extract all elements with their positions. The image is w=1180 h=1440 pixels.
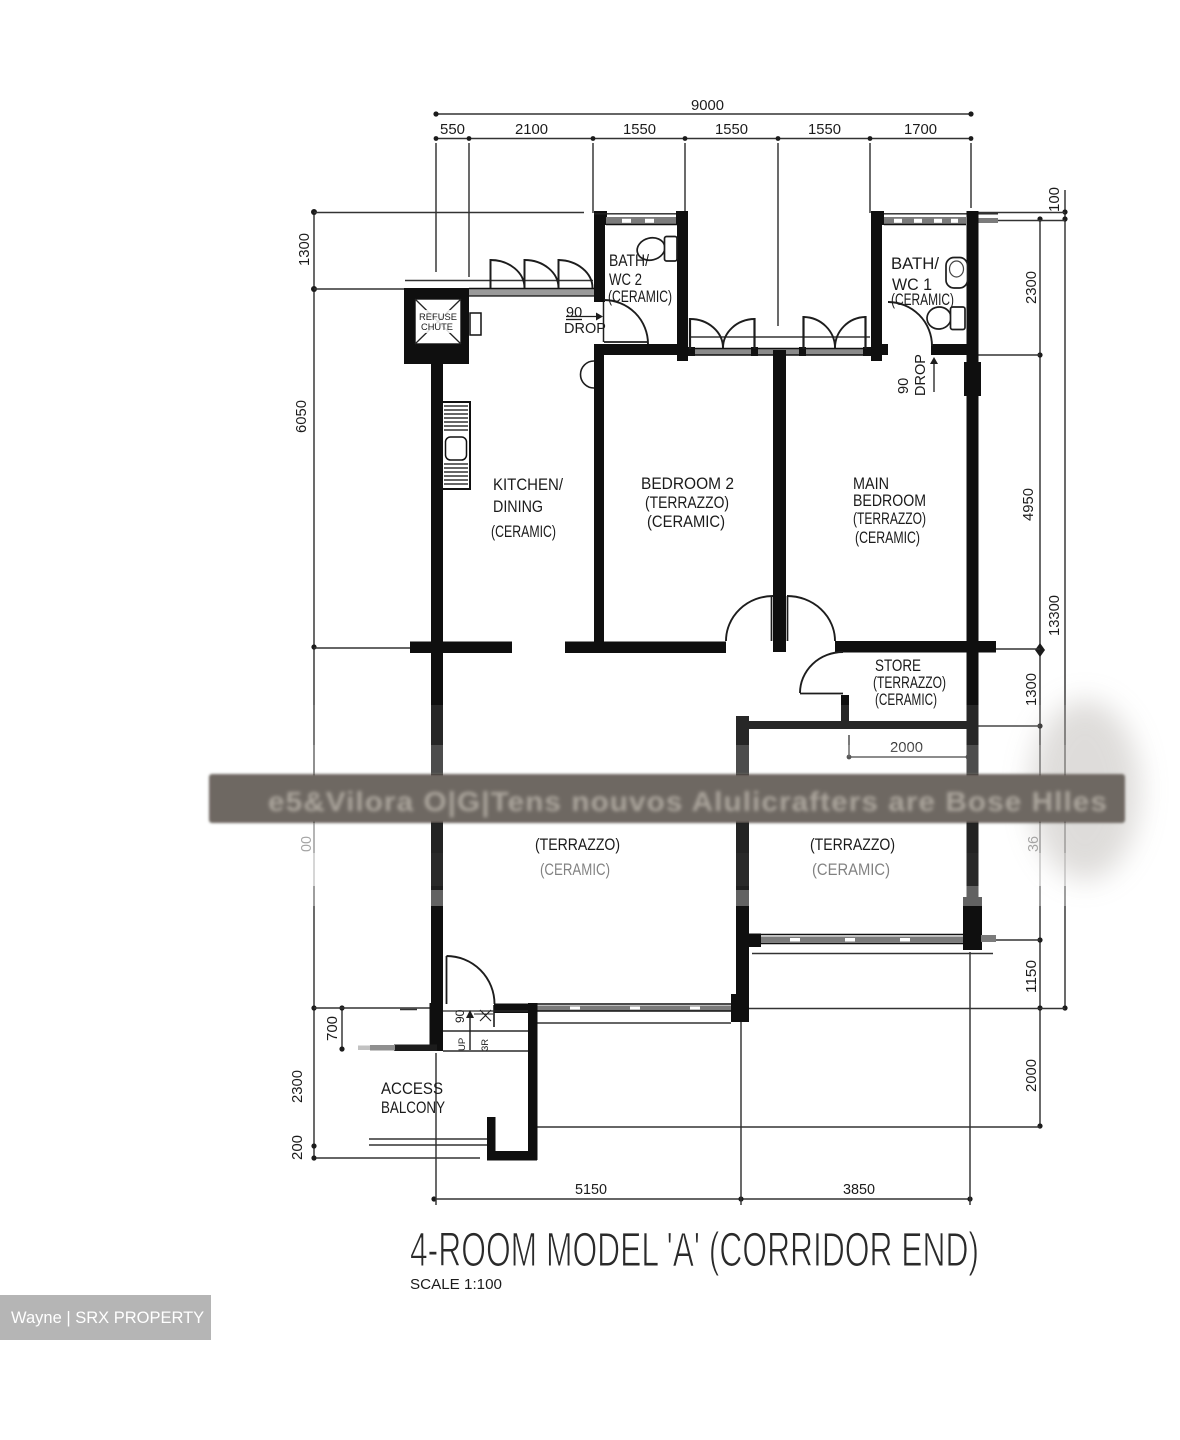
svg-text:1150: 1150 <box>1024 960 1040 993</box>
svg-text:(TERRAZZO): (TERRAZZO) <box>810 836 895 854</box>
svg-text:BATH/: BATH/ <box>891 255 939 273</box>
svg-text:2300: 2300 <box>290 1070 306 1103</box>
svg-text:BEDROOM: BEDROOM <box>853 492 926 510</box>
svg-text:DINING: DINING <box>493 498 543 516</box>
svg-text:Wayne | SRX PROPERTY: Wayne | SRX PROPERTY <box>11 1309 204 1327</box>
svg-text:1550: 1550 <box>808 122 841 138</box>
svg-text:(CERAMIC): (CERAMIC) <box>855 529 920 547</box>
svg-text:200: 200 <box>290 1135 306 1160</box>
svg-text:2000: 2000 <box>1024 1059 1040 1092</box>
svg-text:(CERAMIC): (CERAMIC) <box>491 523 556 541</box>
svg-text:(CERAMIC): (CERAMIC) <box>608 288 672 306</box>
svg-text:1550: 1550 <box>715 122 748 138</box>
svg-text:9000: 9000 <box>691 98 724 114</box>
svg-text:WC 2: WC 2 <box>609 271 642 289</box>
svg-text:DROP: DROP <box>564 321 606 337</box>
svg-text:4-ROOM MODEL 'A' (CORRIDOR END: 4-ROOM MODEL 'A' (CORRIDOR END) <box>410 1224 979 1277</box>
svg-text:DROP: DROP <box>913 354 929 396</box>
svg-text:(CERAMIC): (CERAMIC) <box>812 861 890 879</box>
svg-text:1550: 1550 <box>623 122 656 138</box>
svg-text:3850: 3850 <box>843 1182 875 1198</box>
svg-text:90: 90 <box>896 378 912 394</box>
svg-text:CHUTE: CHUTE <box>421 322 453 333</box>
svg-text:BALCONY: BALCONY <box>381 1099 445 1117</box>
svg-text:3R: 3R <box>480 1039 491 1051</box>
svg-text:5150: 5150 <box>575 1182 607 1198</box>
svg-text:1300: 1300 <box>297 233 313 266</box>
svg-text:700: 700 <box>325 1016 341 1041</box>
svg-text:MAIN: MAIN <box>853 475 889 493</box>
svg-text:100: 100 <box>1047 187 1063 212</box>
svg-text:1300: 1300 <box>1024 673 1040 706</box>
svg-text:(TERRAZZO): (TERRAZZO) <box>873 674 946 692</box>
svg-text:SCALE 1:100: SCALE 1:100 <box>410 1277 502 1293</box>
svg-text:ACCESS: ACCESS <box>381 1080 443 1098</box>
svg-text:90: 90 <box>566 305 582 321</box>
svg-text:STORE: STORE <box>875 657 921 675</box>
svg-text:550: 550 <box>440 122 465 138</box>
svg-text:(TERRAZZO): (TERRAZZO) <box>535 836 620 854</box>
svg-text:1700: 1700 <box>904 122 937 138</box>
svg-text:2300: 2300 <box>1024 271 1040 304</box>
svg-text:e5&Vilora O|G|Tens nouvos Alul: e5&Vilora O|G|Tens nouvos Alulicrafters … <box>268 786 1108 817</box>
svg-text:13300: 13300 <box>1047 595 1063 636</box>
svg-text:UP: UP <box>457 1038 468 1051</box>
svg-text:BATH/: BATH/ <box>609 252 649 270</box>
svg-text:KITCHEN/: KITCHEN/ <box>493 476 563 494</box>
svg-text:BEDROOM 2: BEDROOM 2 <box>641 475 734 493</box>
svg-text:(TERRAZZO): (TERRAZZO) <box>853 510 926 528</box>
svg-text:6050: 6050 <box>294 400 310 433</box>
svg-text:4950: 4950 <box>1021 488 1037 521</box>
svg-text:(CERAMIC): (CERAMIC) <box>891 291 954 309</box>
svg-text:(TERRAZZO): (TERRAZZO) <box>645 494 729 512</box>
svg-text:(CERAMIC): (CERAMIC) <box>647 513 725 531</box>
svg-text:(CERAMIC): (CERAMIC) <box>540 861 610 879</box>
svg-text:2100: 2100 <box>515 122 548 138</box>
